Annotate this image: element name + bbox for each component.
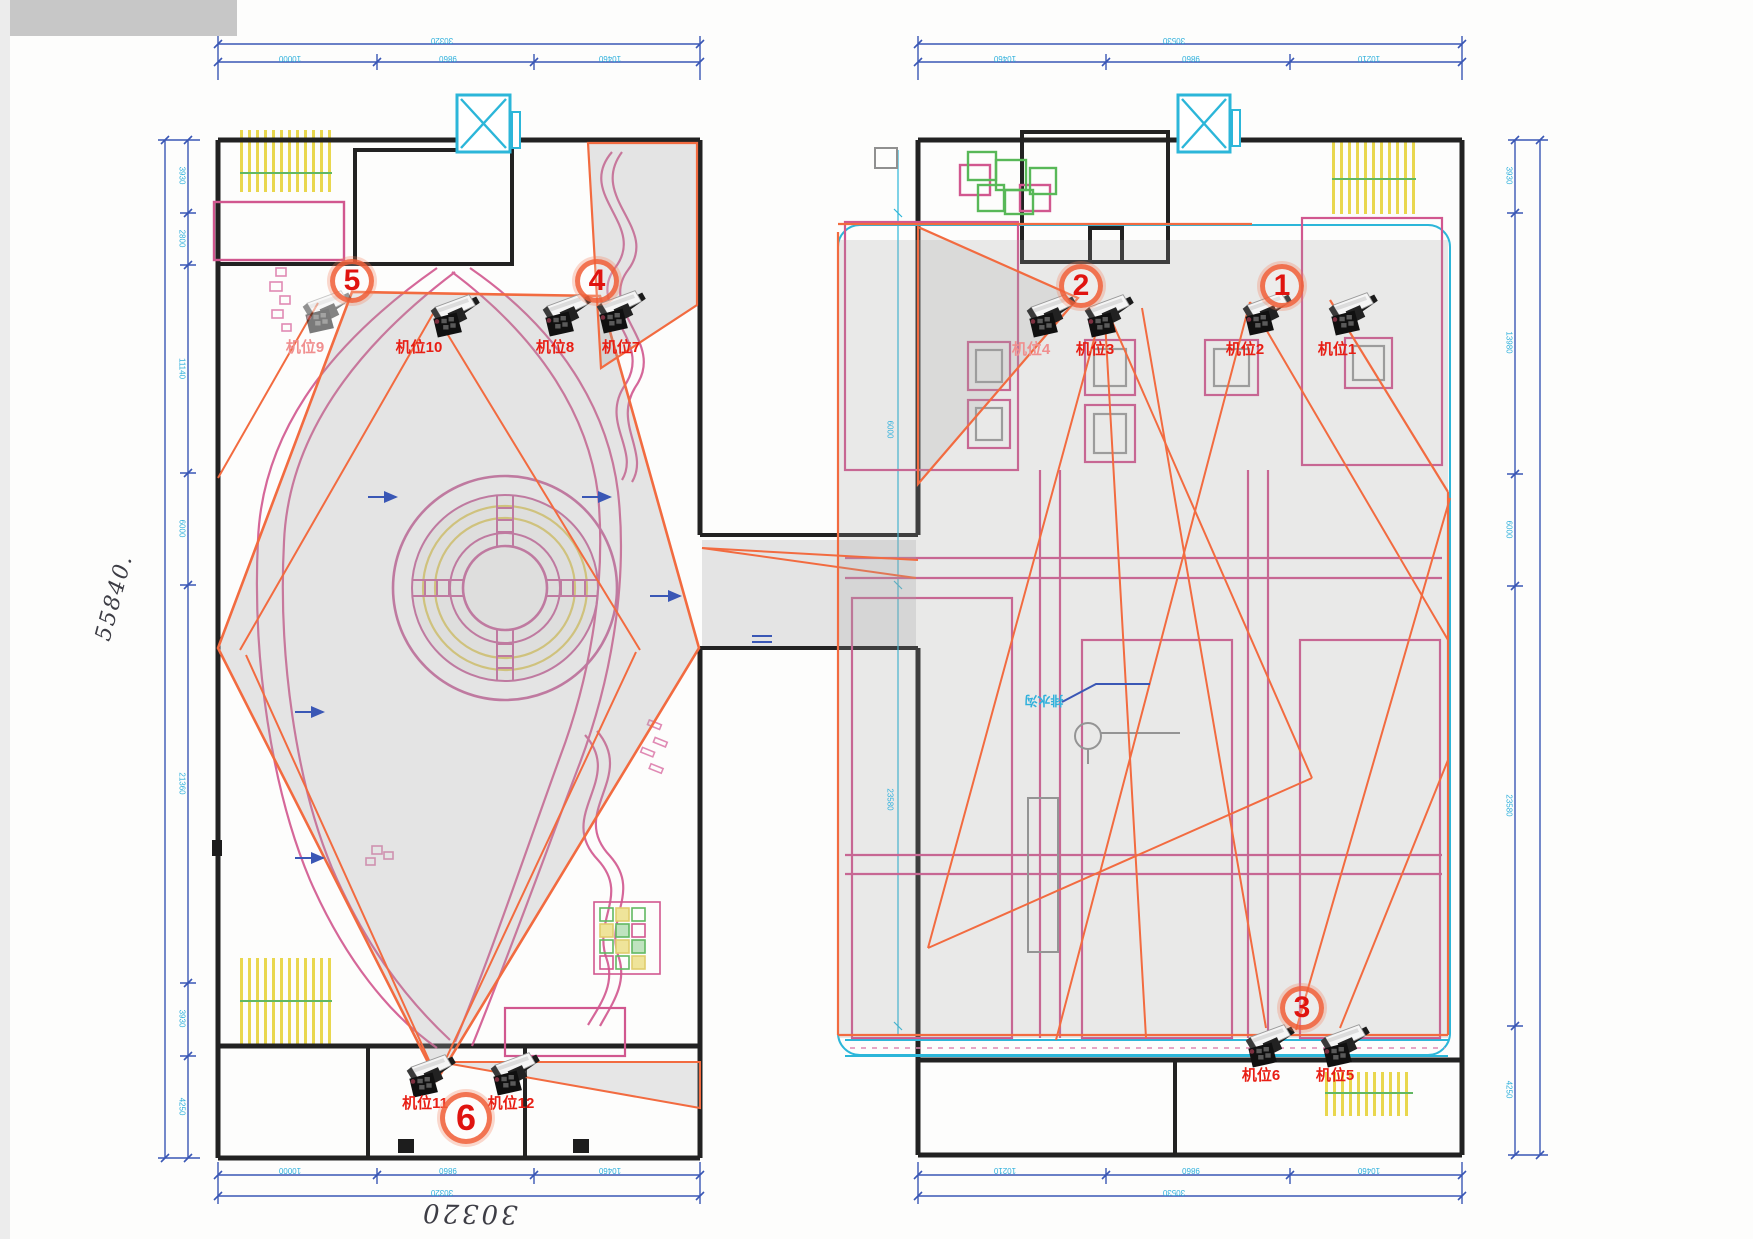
- camera-label-8: 机位8: [522, 336, 588, 357]
- dim-left-seg7: 4250: [178, 1084, 187, 1130]
- dim-bottom-left-total: 30320: [415, 1188, 469, 1197]
- dim-bottom-right-seg3: 10460: [1342, 1166, 1396, 1175]
- dim-bottom-right-seg1: 10210: [978, 1166, 1032, 1175]
- dim-top-left-seg3: 10460: [583, 54, 637, 63]
- dim-left-seg2: 2800: [178, 216, 187, 262]
- position-marker-5: 5: [330, 259, 374, 303]
- camera-label-6: 机位6: [1228, 1064, 1294, 1085]
- scan-artifact-edge: [0, 0, 10, 1239]
- camera-label-5: 机位5: [1302, 1064, 1368, 1085]
- scan-artifact-corner: [0, 0, 237, 36]
- dim-bottom-right-seg2: 9860: [1164, 1166, 1218, 1175]
- position-marker-3: 3: [1280, 986, 1324, 1030]
- stairs-top-left: [240, 130, 332, 192]
- floor-plan-canvas: 机位9 机位10 机位8 机位7 机位4 机位3 机位2 机位1 机位6 机位5…: [0, 0, 1753, 1239]
- position-marker-1: 1: [1260, 264, 1304, 308]
- stairs-top-right-line: [1332, 178, 1416, 180]
- dim-bottom-left-seg3: 10460: [583, 1166, 637, 1175]
- camera-label-9: 机位9: [272, 336, 338, 357]
- stairs-bottom-left-line: [240, 1000, 332, 1002]
- dim-right-seg3: 6000: [1505, 507, 1514, 553]
- dim-right-seg2: 13980: [1505, 320, 1514, 366]
- dim-top-left-seg1: 10000: [263, 54, 317, 63]
- dim-left-seg1: 3930: [178, 153, 187, 199]
- camera-label-10: 机位10: [386, 336, 452, 357]
- handwritten-left-total: 55840.: [91, 551, 138, 643]
- dim-top-right-seg2: 9860: [1164, 54, 1218, 63]
- dim-top-right-seg1: 10460: [978, 54, 1032, 63]
- dim-inner-seg1: 6000: [886, 407, 895, 453]
- dim-left-seg4: 6000: [178, 506, 187, 552]
- position-marker-2: 2: [1059, 264, 1103, 308]
- dim-top-left-total: 30320: [415, 36, 469, 45]
- camera-label-4: 机位4: [998, 338, 1064, 359]
- dim-right-seg1: 3930: [1505, 153, 1514, 199]
- dim-left-seg5: 21360: [178, 761, 187, 807]
- dim-right-seg4: 23580: [1505, 783, 1514, 829]
- stairs-bottom-left: [240, 958, 332, 1046]
- handwritten-bottom-total: 30320: [420, 1197, 518, 1229]
- drain-note: 排水沟: [1012, 692, 1076, 711]
- dim-bottom-left-seg1: 10000: [263, 1166, 317, 1175]
- dim-inner-seg2: 23580: [886, 777, 895, 823]
- position-marker-4: 4: [575, 259, 619, 303]
- dim-left-seg6: 3930: [178, 996, 187, 1042]
- position-marker-6: 6: [440, 1092, 492, 1144]
- dim-left-seg3: 11140: [178, 346, 187, 392]
- dim-bottom-right-total: 30530: [1147, 1188, 1201, 1197]
- dim-top-left-seg2: 9860: [421, 54, 475, 63]
- dim-top-right-seg3: 10210: [1342, 54, 1396, 63]
- camera-icons: [303, 291, 1378, 1098]
- stairs-bottom-right-line: [1325, 1092, 1413, 1094]
- camera-label-2: 机位2: [1212, 338, 1278, 359]
- camera-label-7: 机位7: [588, 336, 654, 357]
- dim-bottom-left-seg2: 9860: [421, 1166, 475, 1175]
- dim-top-right-total: 30530: [1147, 36, 1201, 45]
- dim-right-seg5: 4250: [1505, 1067, 1514, 1113]
- camera-label-1: 机位1: [1304, 338, 1370, 359]
- camera-label-3: 机位3: [1062, 338, 1128, 359]
- stairs-top-left-line: [240, 172, 332, 174]
